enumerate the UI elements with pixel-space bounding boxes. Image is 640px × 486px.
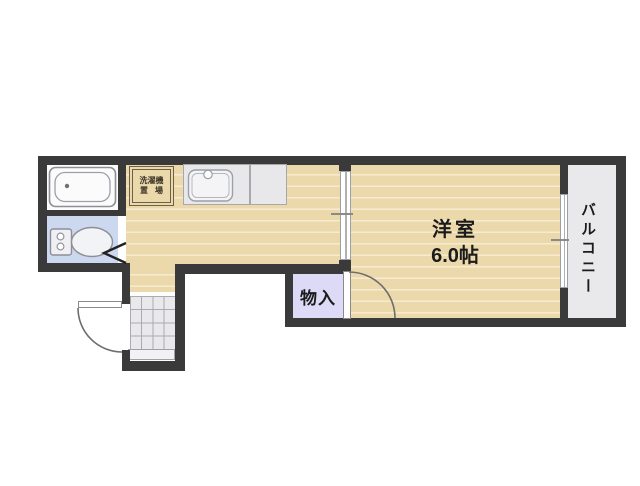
bathtub-icon [48, 166, 118, 208]
floor-plan: 洗濯機 置場 洋室 6.0帖 物入 バルコニー [0, 0, 640, 486]
sliding-door-handle-icon [331, 213, 353, 215]
western-room-size: 6.0帖 [395, 239, 515, 268]
genkan-tile-floor [130, 296, 175, 349]
wall-top [38, 156, 626, 165]
kitchen-room-sliding-door [340, 171, 351, 260]
wall-balcony-stub-bottom [560, 288, 568, 327]
wall-main-bottom [285, 318, 626, 327]
balcony-window-handle-icon [551, 239, 569, 241]
genkan-threshold [128, 349, 175, 360]
wall-genkan-right [175, 265, 185, 371]
wall-bath-toilet-divider [47, 210, 118, 216]
wall-left [38, 156, 47, 272]
wall-bath-right [118, 156, 126, 216]
wall-partition-stub-top [339, 156, 351, 171]
western-room-label: 洋室 [395, 213, 515, 242]
washing-machine-label: 洗濯機 置場 [132, 169, 171, 203]
entry-door-swing-icon [74, 299, 126, 357]
balcony-label: バルコニー [577, 202, 598, 317]
wall-right [616, 156, 626, 327]
wall-balcony-stub-top [560, 156, 568, 194]
toilet-door-icon [101, 241, 128, 265]
kitchen-sink-icon [187, 166, 235, 203]
wall-kitchen-bottom [175, 264, 351, 274]
storage-door-swing-icon [347, 270, 399, 322]
washing-machine-area: 洗濯機 置場 [129, 166, 174, 206]
wall-genkan-left-upper [122, 263, 130, 304]
balcony-window [560, 194, 568, 288]
storage-label: 物入 [291, 284, 345, 309]
kitchen-floor-strip [130, 264, 175, 294]
